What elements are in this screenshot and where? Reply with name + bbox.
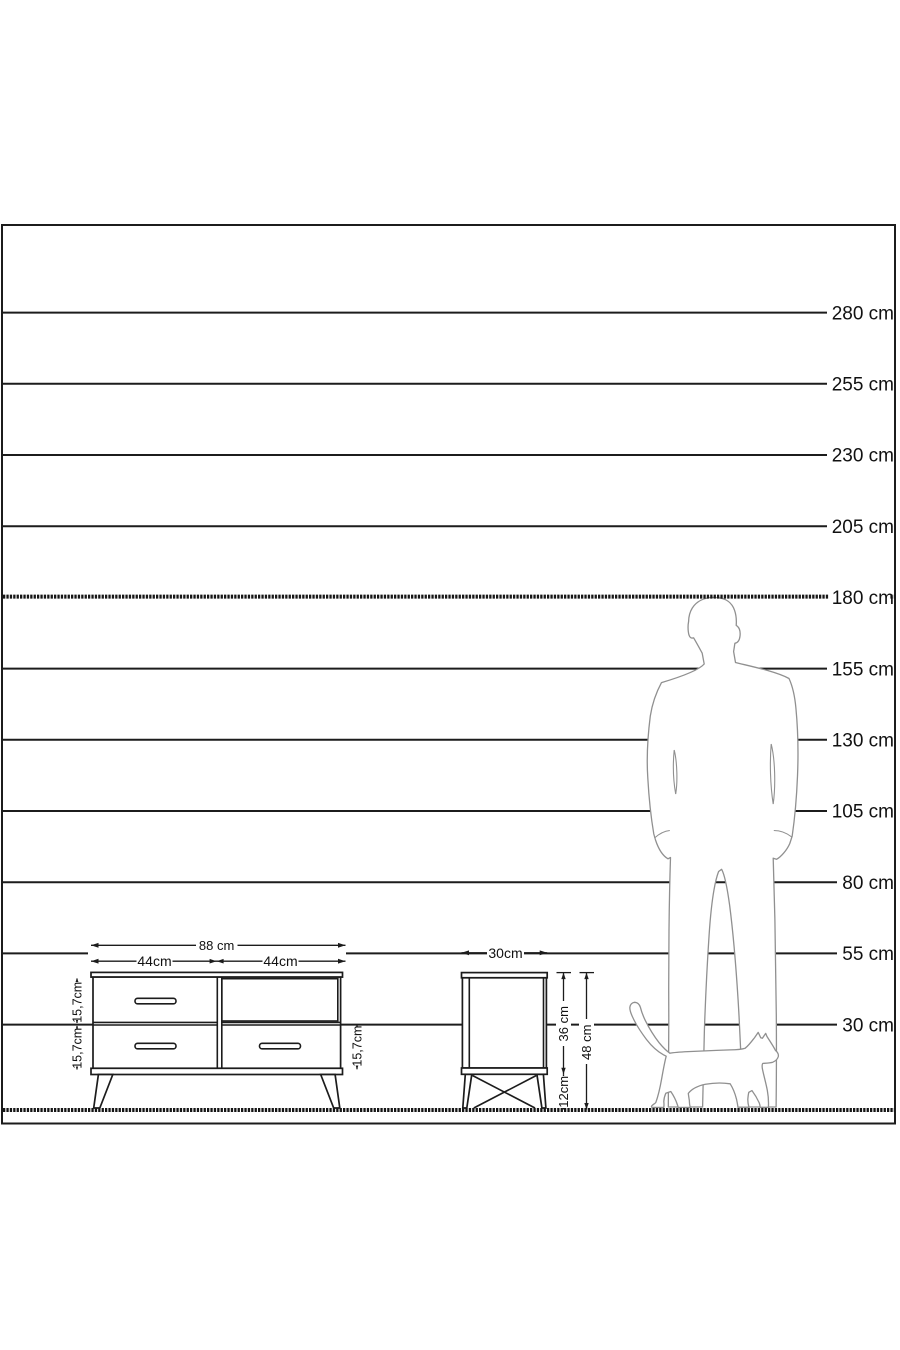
svg-text:48 cm: 48 cm	[579, 1025, 594, 1060]
svg-text:12cm: 12cm	[556, 1076, 571, 1108]
svg-text:230 cm: 230 cm	[832, 446, 894, 467]
svg-text:36 cm: 36 cm	[556, 1006, 571, 1041]
svg-text:88 cm: 88 cm	[199, 938, 234, 953]
svg-text:155 cm: 155 cm	[832, 659, 894, 680]
svg-text:15,7cm: 15,7cm	[71, 982, 85, 1023]
svg-text:55 cm: 55 cm	[842, 944, 894, 965]
svg-text:44cm: 44cm	[263, 953, 297, 969]
svg-text:180 cm: 180 cm	[832, 588, 894, 609]
svg-text:130 cm: 130 cm	[832, 731, 894, 752]
svg-text:15,7cm: 15,7cm	[71, 1028, 85, 1069]
svg-text:105 cm: 105 cm	[832, 802, 894, 823]
svg-text:30 cm: 30 cm	[842, 1015, 894, 1036]
svg-text:255 cm: 255 cm	[832, 375, 894, 396]
svg-text:44cm: 44cm	[137, 953, 171, 969]
svg-text:205 cm: 205 cm	[832, 517, 894, 538]
svg-text:15,7cm: 15,7cm	[351, 1026, 365, 1067]
svg-text:80 cm: 80 cm	[842, 873, 894, 894]
svg-text:280 cm: 280 cm	[832, 303, 894, 324]
svg-text:30cm: 30cm	[488, 945, 522, 961]
